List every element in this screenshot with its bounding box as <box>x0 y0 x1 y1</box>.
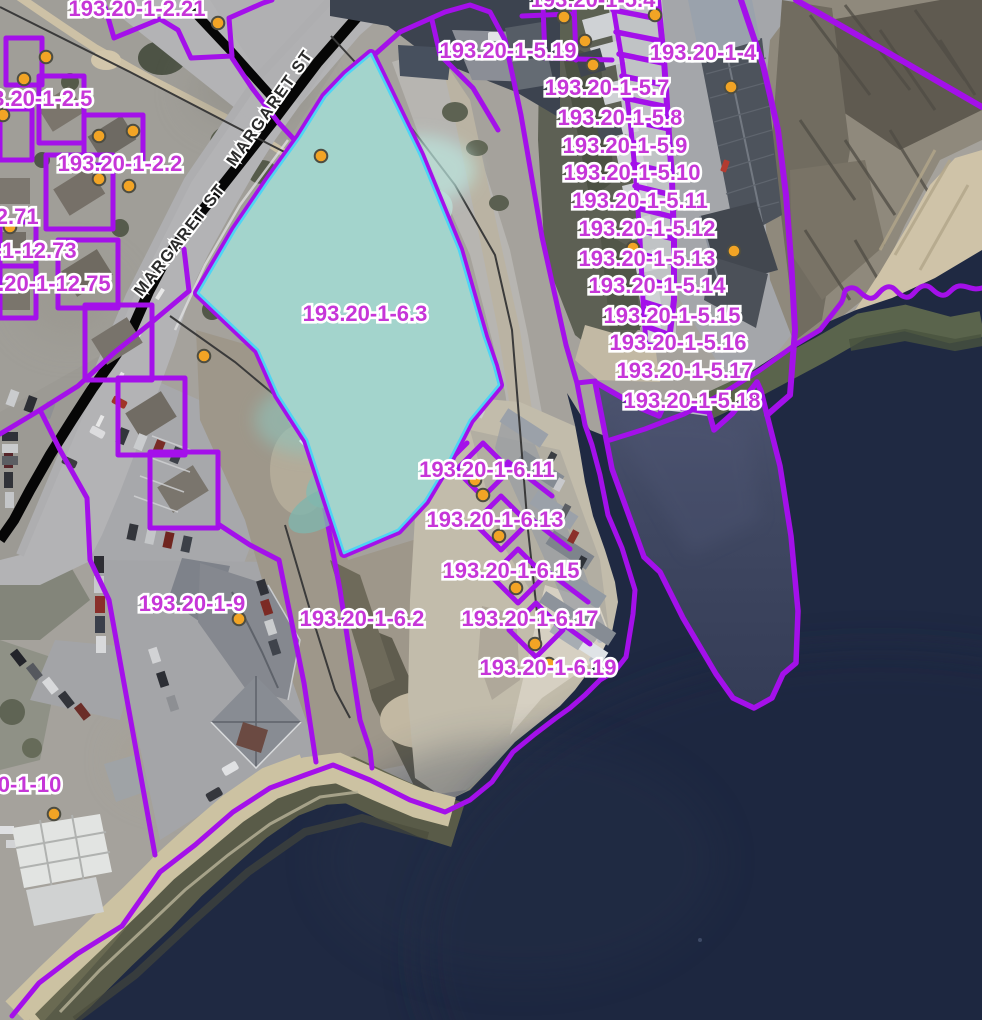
svg-text:193.20-1-12.75: 193.20-1-12.75 <box>0 271 111 296</box>
svg-text:193.20-1-4: 193.20-1-4 <box>650 40 757 65</box>
svg-text:193.20-1-6.11: 193.20-1-6.11 <box>419 457 555 482</box>
svg-text:193.20-1-2.5: 193.20-1-2.5 <box>0 86 92 111</box>
svg-text:193.20-1-6.15: 193.20-1-6.15 <box>443 558 580 583</box>
svg-text:193.20-1-6.13: 193.20-1-6.13 <box>427 507 564 532</box>
svg-text:193.20-1-5.11: 193.20-1-5.11 <box>572 188 708 213</box>
svg-text:193.20-1-9: 193.20-1-9 <box>139 591 245 616</box>
svg-text:193.20-1-6.17: 193.20-1-6.17 <box>462 606 599 631</box>
svg-text:193.20-1-5.14: 193.20-1-5.14 <box>589 273 727 298</box>
svg-text:193.20-1-5.10: 193.20-1-5.10 <box>564 160 701 185</box>
svg-text:193.20-1-10: 193.20-1-10 <box>0 772 61 797</box>
svg-text:193.20-1-12.71: 193.20-1-12.71 <box>0 204 39 229</box>
svg-text:193.20-1-5.12: 193.20-1-5.12 <box>579 216 716 241</box>
svg-text:193.20-1-5.17: 193.20-1-5.17 <box>617 358 754 383</box>
svg-text:193.20-1-2.21: 193.20-1-2.21 <box>69 0 206 21</box>
svg-text:193.20-1-6.19: 193.20-1-6.19 <box>480 655 617 680</box>
svg-text:193.20-1-5.8: 193.20-1-5.8 <box>558 105 683 130</box>
svg-text:193.20-1-5.19: 193.20-1-5.19 <box>440 38 577 63</box>
svg-text:193.20-1-5.18: 193.20-1-5.18 <box>624 388 761 413</box>
svg-text:193.20-1-5.9: 193.20-1-5.9 <box>563 133 688 158</box>
svg-text:193.20-1-12.73: 193.20-1-12.73 <box>0 238 77 263</box>
svg-text:193.20-1-2.2: 193.20-1-2.2 <box>58 151 183 176</box>
svg-text:193.20-1-5.13: 193.20-1-5.13 <box>579 246 716 271</box>
svg-text:193.20-1-5.7: 193.20-1-5.7 <box>545 75 670 100</box>
svg-text:193.20-1-5.15: 193.20-1-5.15 <box>604 303 741 328</box>
svg-text:193.20-1-5.16: 193.20-1-5.16 <box>610 330 747 355</box>
svg-text:193.20-1-5.4: 193.20-1-5.4 <box>531 0 657 12</box>
svg-text:193.20-1-6.3: 193.20-1-6.3 <box>303 301 428 326</box>
svg-text:193.20-1-6.2: 193.20-1-6.2 <box>300 606 425 631</box>
